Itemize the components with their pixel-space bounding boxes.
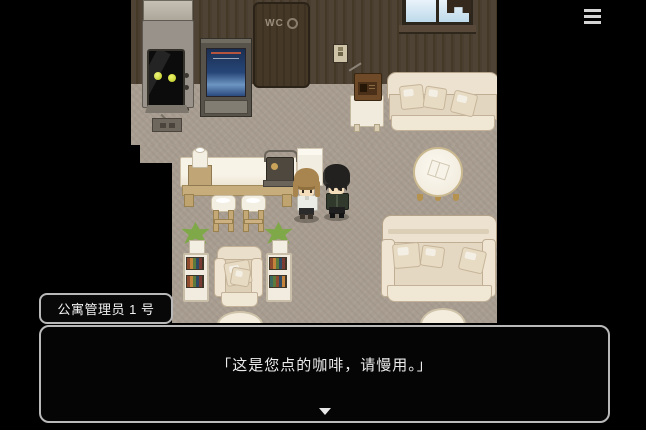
robot-face-screen [147, 49, 185, 109]
coffee-machine-knob [271, 163, 278, 170]
bookshelf [183, 226, 209, 302]
window-sill [399, 25, 476, 34]
dialogue-box[interactable]: 「这是您点的咖啡，请慢用。」 [39, 325, 610, 423]
counter-leg [184, 194, 194, 207]
machine-base [145, 105, 189, 113]
book-row [186, 257, 204, 270]
dialogue-text: 「这是您点的咖啡，请慢用。」 [41, 354, 608, 375]
radio [354, 73, 382, 101]
robot-vending-machine [142, 0, 194, 113]
door-handle-icon [287, 18, 298, 29]
light-switch [333, 44, 348, 63]
robot-eye-icon [168, 74, 176, 82]
kiosk-top [201, 39, 251, 43]
game-viewport[interactable]: WC [131, 0, 497, 323]
machine-button [184, 73, 189, 78]
radio-front [358, 82, 377, 95]
character-shadow [294, 215, 319, 223]
sofa-cushion [399, 84, 425, 110]
book-row [269, 275, 287, 288]
kiosk-base [204, 100, 248, 114]
chair-cushion [230, 266, 252, 287]
machine-button [184, 85, 189, 90]
game-screen: { "ui": { "menu_icon": "hamburger-menu",… [0, 0, 646, 430]
book-row [186, 275, 204, 288]
round-table [413, 147, 463, 197]
bookshelf [266, 226, 292, 302]
character-shadow [324, 213, 349, 221]
bar-stool [240, 193, 266, 232]
menu-icon[interactable] [584, 9, 601, 25]
info-kiosk [200, 38, 252, 117]
sofa-cushion [420, 245, 446, 269]
wooden-crate [188, 165, 212, 186]
bar-stool [210, 193, 236, 232]
kiosk-screen [206, 48, 246, 97]
wc-door: WC [253, 2, 310, 88]
black-hair [323, 164, 350, 188]
speaker-name-tag: 公寓管理员 1 号 [39, 293, 173, 324]
npc-manager-character [291, 166, 322, 223]
brown-hair [294, 168, 319, 190]
player-character [321, 164, 352, 221]
window-pane [406, 0, 436, 22]
sofa-lower [382, 215, 495, 302]
sofa-cushion [392, 242, 421, 269]
sofa-cushion [422, 85, 447, 110]
machine-body [142, 20, 194, 108]
armchair [215, 246, 262, 305]
sofa-upper [387, 72, 497, 130]
continue-indicator-icon[interactable] [319, 408, 331, 415]
dispenser-slot [152, 118, 182, 132]
wc-door-label: WC [265, 18, 284, 86]
kettle [192, 149, 208, 168]
speaker-name: 公寓管理员 1 号 [58, 299, 155, 318]
book-row [269, 257, 287, 270]
